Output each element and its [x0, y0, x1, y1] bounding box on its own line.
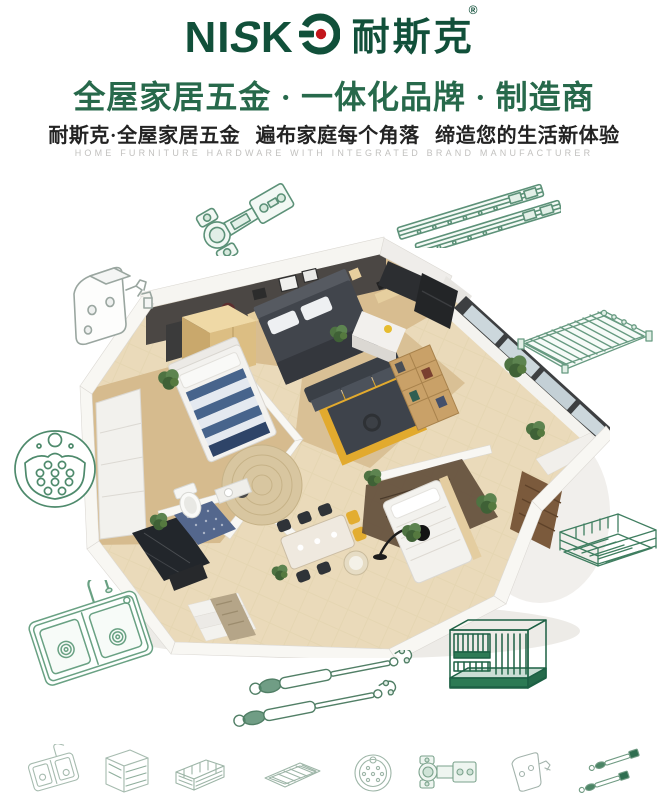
gas-lift-struts-icon — [574, 744, 650, 796]
sink-strainer-icon — [8, 423, 102, 513]
main-headline: 全屋家居五金 · 一体化品牌 · 制造商 — [0, 72, 668, 118]
pull-out-basket-icon — [546, 506, 664, 586]
wire-shelf-icon — [512, 295, 658, 375]
storage-cabinet-icon — [100, 746, 152, 796]
sink-strainer-icon — [352, 752, 394, 794]
brand-logo-latin: NISK — [185, 12, 340, 64]
drawer-slides-icon — [383, 182, 561, 248]
english-tagline: HOME FURNITURE HARDWARE WITH INTEGRATED … — [0, 148, 668, 158]
gas-lift-struts-icon — [228, 650, 414, 734]
mounting-bracket-icon — [56, 260, 164, 348]
mounting-bracket-icon — [504, 750, 554, 794]
wire-shelf-icon — [260, 756, 324, 792]
brand-logo-k: K — [261, 16, 294, 60]
double-bowl-sink-icon — [18, 744, 88, 796]
kitchen-wire-rack-icon — [442, 590, 554, 698]
brand-logo: NISK 耐斯克® — [0, 12, 668, 64]
brand-logo-o-icon — [296, 12, 340, 64]
concealed-hinge-icon — [193, 182, 315, 256]
brand-logo-cjk-wrap: 耐斯克® — [352, 19, 484, 57]
registered-mark: ® — [469, 3, 478, 17]
sub-headline: 耐斯克·全屋家居五金 遍布家庭每个角落 缔造您的生活新体验 — [0, 119, 668, 148]
kids-closet — [96, 389, 146, 539]
double-bowl-sink-icon — [18, 580, 158, 692]
brand-logo-ni: NI — [185, 16, 231, 60]
poster-page: NISK 耐斯克® 全屋家居五金 · 一体化品牌 · 制造商 耐斯克·全屋家居五… — [0, 0, 668, 800]
concealed-hinge-icon — [416, 752, 480, 792]
pull-out-basket-icon — [170, 752, 228, 794]
brand-logo-cjk: 耐斯克 — [352, 17, 475, 59]
